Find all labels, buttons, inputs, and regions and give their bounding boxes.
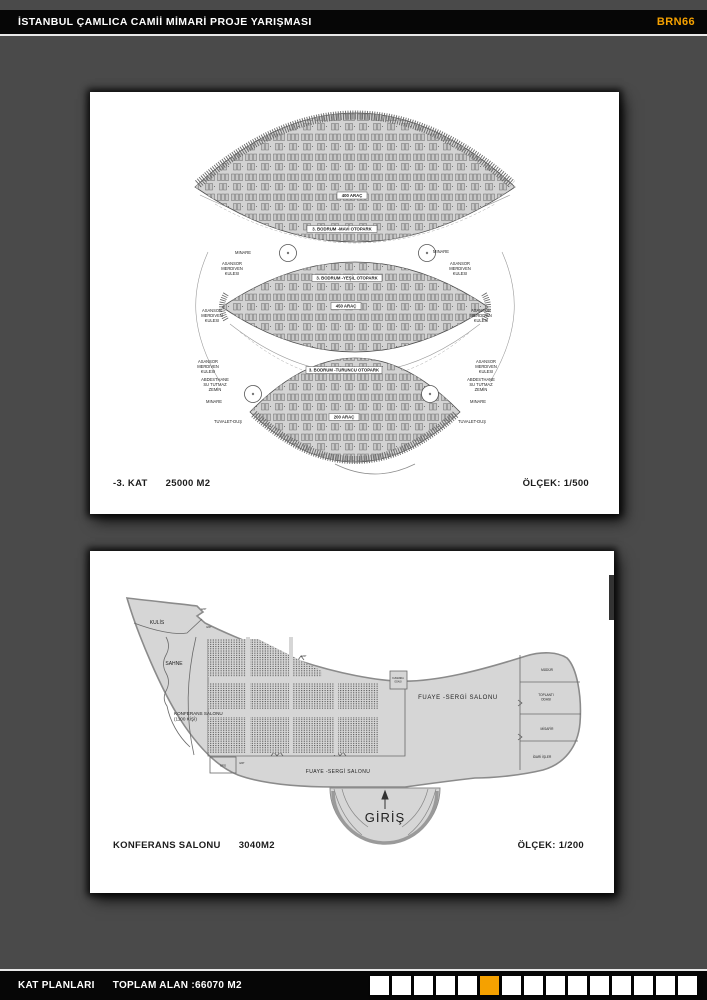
basement-plan-drawing: 400 ARAÇ 3. BODRUM -MAVİ OTOPARK 3. BODR…: [90, 92, 619, 514]
header-bar: İSTANBUL ÇAMLICA CAMİİ MİMARİ PROJE YARI…: [0, 10, 707, 34]
svg-text:KULESI: KULESI: [205, 318, 220, 323]
misafir-label: MİSAFİR: [541, 726, 555, 731]
svg-text:(1100 KİŞİ): (1100 KİŞİ): [174, 716, 197, 722]
svg-text:ODASI: ODASI: [541, 698, 551, 702]
floor-area: 25000 M2: [166, 478, 211, 489]
header-underline: [0, 34, 707, 36]
total-area-label: TOPLAM ALAN :66070 M2: [113, 980, 242, 991]
zone-turuncu-cars: 200 ARAÇ: [334, 415, 355, 420]
svg-text:KULESI: KULESI: [474, 318, 489, 323]
parking-stall-texture: [195, 113, 515, 462]
hall-name: KONFERANS SALONU: [113, 840, 221, 851]
svg-text:MINARE: MINARE: [470, 399, 486, 404]
sheet-square-12[interactable]: [612, 976, 631, 995]
svg-text:KULESI: KULESI: [201, 369, 216, 374]
sheet-square-5[interactable]: [458, 976, 477, 995]
svg-text:EXIT: EXIT: [239, 763, 245, 765]
svg-text:KULESI: KULESI: [453, 271, 468, 276]
toplanti-label: TOPLANTI: [538, 693, 554, 697]
sheet-square-14[interactable]: [656, 976, 675, 995]
sheet-square-8[interactable]: [524, 976, 543, 995]
svg-text:ODASI: ODASI: [394, 681, 402, 684]
sheet-square-13[interactable]: [634, 976, 653, 995]
sheet-square-6[interactable]: [480, 976, 499, 995]
scale-label: ÖLÇEK: 1/500: [523, 478, 589, 489]
kulis-label: KULİS: [150, 619, 165, 626]
svg-text:EXIT: EXIT: [301, 656, 307, 658]
svg-text:TUVALET-DUŞ: TUVALET-DUŞ: [458, 419, 486, 424]
minare-label: MINARE: [235, 250, 251, 255]
sheet-square-9[interactable]: [546, 976, 565, 995]
svg-text:KULESI: KULESI: [225, 271, 240, 276]
floor-label: -3. KAT: [113, 478, 148, 489]
svg-text:MINARE: MINARE: [433, 249, 449, 254]
entry-code: BRN66: [657, 16, 695, 28]
sheet-index-squares: [370, 976, 697, 995]
konferans-label: KONFERANS SALONU: [174, 711, 223, 716]
sheet-square-7[interactable]: [502, 976, 521, 995]
floor-plan-panel-conference: KULİS SAHNE KONFERANS SALONU (1100 KİŞİ)…: [90, 551, 614, 893]
board-title: İSTANBUL ÇAMLICA CAMİİ MİMARİ PROJE YARI…: [18, 16, 312, 28]
svg-text:ZEMİN: ZEMİN: [475, 387, 488, 392]
zone-yesil-name: 3. BODRUM -YEŞİL OTOPARK: [316, 276, 378, 281]
sheet-square-15[interactable]: [678, 976, 697, 995]
zone-yesil-cars: 450 ARAÇ: [336, 304, 357, 309]
mudur-label: MÜDÜR: [541, 668, 554, 672]
kumanda-label: KUMANDA: [392, 677, 404, 680]
footer-title: KAT PLANLARI: [18, 980, 95, 991]
zone-turuncu-name: 3. BODRUM -TURUNCU OTOPARK: [309, 368, 380, 373]
panel1-caption: -3. KAT 25000 M2 ÖLÇEK: 1/500: [113, 478, 589, 489]
exit-label: EXIT: [201, 609, 207, 611]
zone-mavi-name: 3. BODRUM -MAVİ OTOPARK: [312, 227, 372, 232]
hall-area: 3040M2: [239, 840, 275, 851]
sheet-square-11[interactable]: [590, 976, 609, 995]
giris-label: GİRİŞ: [365, 810, 405, 825]
floor-plan-panel-basement: 400 ARAÇ 3. BODRUM -MAVİ OTOPARK 3. BODR…: [90, 92, 619, 514]
sahne-label: SAHNE: [165, 661, 183, 667]
footer-bar: KAT PLANLARI TOPLAM ALAN :66070 M2: [0, 971, 707, 1000]
zone-mavi-cars: 400 ARAÇ: [342, 193, 363, 198]
svg-text:EXIT: EXIT: [206, 627, 212, 629]
sheet-square-10[interactable]: [568, 976, 587, 995]
svg-text:MINARE: MINARE: [206, 399, 222, 404]
seating-rows: [208, 637, 378, 755]
panel2-caption: KONFERANS SALONU 3040M2 ÖLÇEK: 1/200: [113, 840, 584, 851]
sheet-square-2[interactable]: [392, 976, 411, 995]
fuaye-label-right: FUAYE -SERGİ SALONU: [418, 694, 498, 701]
sheet-square-1[interactable]: [370, 976, 389, 995]
scale-label: ÖLÇEK: 1/200: [518, 840, 584, 851]
sheet-square-4[interactable]: [436, 976, 455, 995]
sheet-square-3[interactable]: [414, 976, 433, 995]
idari-label: İDARİ İŞLER: [533, 754, 552, 759]
svg-text:KULESI: KULESI: [479, 369, 494, 374]
tuvalet-label: TUVALET-DUŞ: [214, 419, 242, 424]
fuaye-label-bottom: FUAYE -SERGİ SALONU: [306, 768, 370, 775]
svg-text:ZEMİN: ZEMİN: [209, 387, 222, 392]
